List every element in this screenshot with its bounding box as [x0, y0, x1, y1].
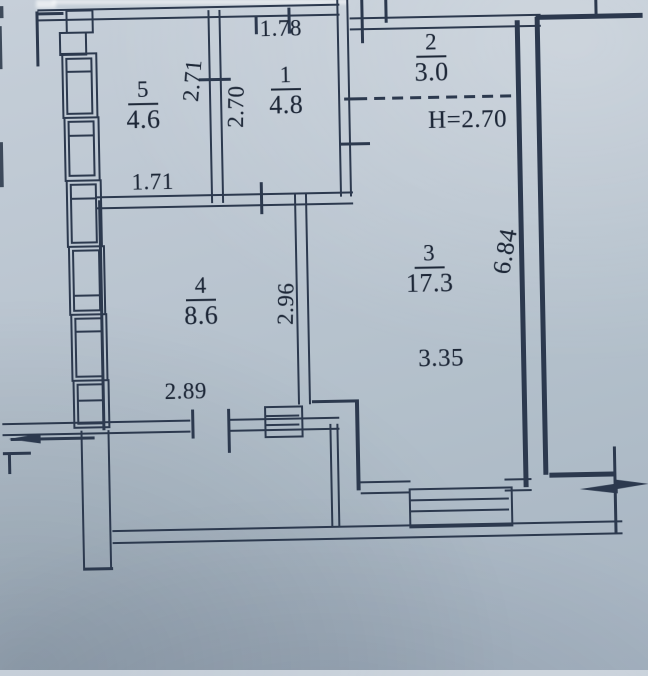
break-mark-left [580, 483, 618, 494]
wall-bottom-right-inner [549, 471, 615, 477]
window-block [65, 9, 93, 34]
dim-room1-width: 1.78 [259, 15, 302, 42]
entrance-line2-tick [8, 452, 11, 474]
room-1-area: 4.8 [269, 90, 304, 120]
room-3-number: 3 [414, 241, 445, 269]
window-pane [73, 294, 101, 312]
room-3-area: 17.3 [406, 268, 454, 299]
shaft-block [264, 405, 304, 438]
room-2-area: 3.0 [414, 57, 449, 87]
wall-stub-below [80, 430, 112, 570]
room-5-number: 5 [128, 78, 159, 106]
room2-dashed-boundary [356, 94, 520, 100]
window-pane [66, 70, 94, 115]
room-2-number: 2 [416, 30, 447, 58]
room-4-label: 4 8.6 [183, 274, 218, 331]
floor-plan: 5 4.6 1 4.8 2 3.0 3 17.3 4 8.6 1.78 2.71… [0, 0, 648, 676]
floor-plan-photo: { "rooms": [ {"number": "5", "area": "4.… [0, 0, 648, 670]
entrance-opening-tick [191, 410, 194, 439]
wall-room3-lower-left [355, 399, 360, 490]
dim-room5-height: 2.71 [178, 58, 208, 102]
wall-corridor-right [329, 424, 340, 528]
room-4-number: 4 [185, 274, 216, 302]
window-pane [75, 330, 104, 378]
room-3-label: 3 17.3 [405, 241, 454, 299]
opening-tick [339, 142, 370, 145]
room3-window [409, 486, 514, 528]
wall-right-outer-face [535, 17, 549, 475]
room-2-label: 2 3.0 [414, 30, 449, 87]
window-pane [72, 249, 101, 297]
wall-jog-horizontal [312, 399, 359, 403]
dim-room4-height: 2.96 [273, 282, 300, 325]
room-1-label: 1 4.8 [268, 63, 303, 120]
left-edge-mark [0, 26, 3, 69]
room-1-number: 1 [270, 63, 301, 91]
dashed-line-left-tick [344, 97, 356, 100]
door-tick-room1-bottom [260, 182, 263, 214]
dim-room3-width: 3.35 [418, 344, 464, 373]
window-pane [70, 197, 98, 244]
entrance-opening-tick2 [227, 409, 230, 453]
ceiling-height: H=2.70 [428, 105, 507, 135]
dim-room5-width: 1.71 [131, 169, 174, 196]
wall-top-right-extension [536, 13, 643, 20]
window-pane [68, 134, 96, 177]
wall-bottom-outer [112, 520, 622, 544]
wall-room2-top [350, 14, 541, 31]
dim-room4-width: 2.89 [164, 378, 207, 405]
left-edge-mark [0, 6, 4, 18]
room-5-label: 5 4.6 [126, 78, 161, 135]
wall-stub-below-cap [83, 567, 113, 571]
dim-room1-height: 2.70 [223, 85, 250, 128]
wall-room5-room1 [207, 10, 224, 203]
wall-room3-bottom-inner [360, 480, 410, 494]
room-5-area: 4.6 [126, 105, 161, 135]
dim-tick-178 [255, 16, 258, 34]
break-mark-right [614, 479, 648, 490]
entrance-arrow-head [9, 433, 41, 444]
room-4-area: 8.6 [184, 301, 219, 331]
wall-top-right-tick [594, 0, 597, 16]
left-edge-mark [0, 142, 4, 187]
